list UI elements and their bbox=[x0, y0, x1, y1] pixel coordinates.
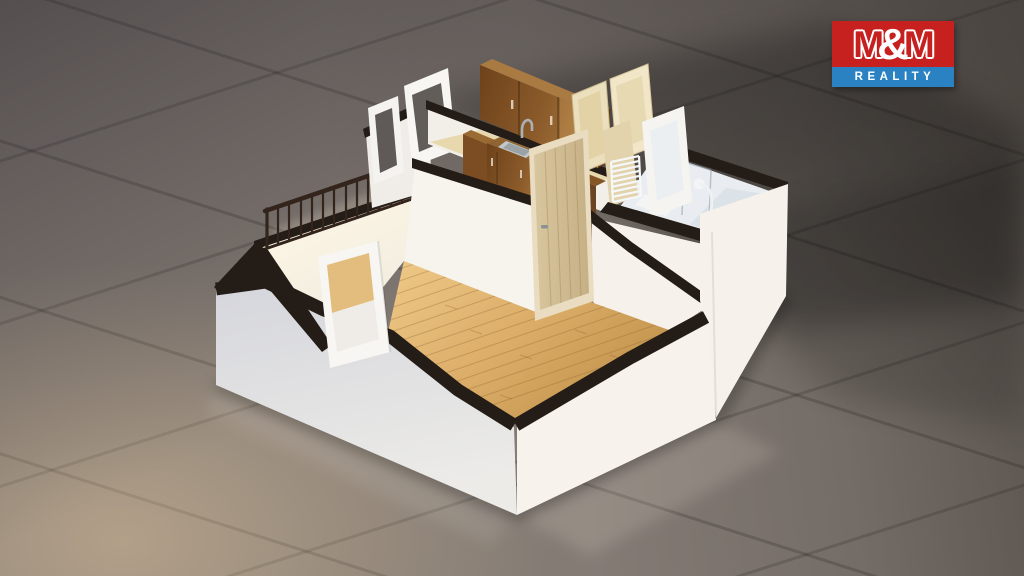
door-handle bbox=[541, 225, 548, 229]
interior-door bbox=[529, 129, 594, 321]
logo-reality-text: REALITY bbox=[832, 67, 954, 87]
bathroom-window-frame bbox=[642, 106, 692, 218]
logo-top-row: M&M bbox=[832, 21, 954, 67]
logo-ampersand: & bbox=[877, 23, 909, 67]
roof-window-frame-left bbox=[368, 96, 404, 184]
mm-reality-logo: M&M REALITY bbox=[832, 21, 954, 87]
knee-wall-window-frame bbox=[318, 241, 390, 368]
